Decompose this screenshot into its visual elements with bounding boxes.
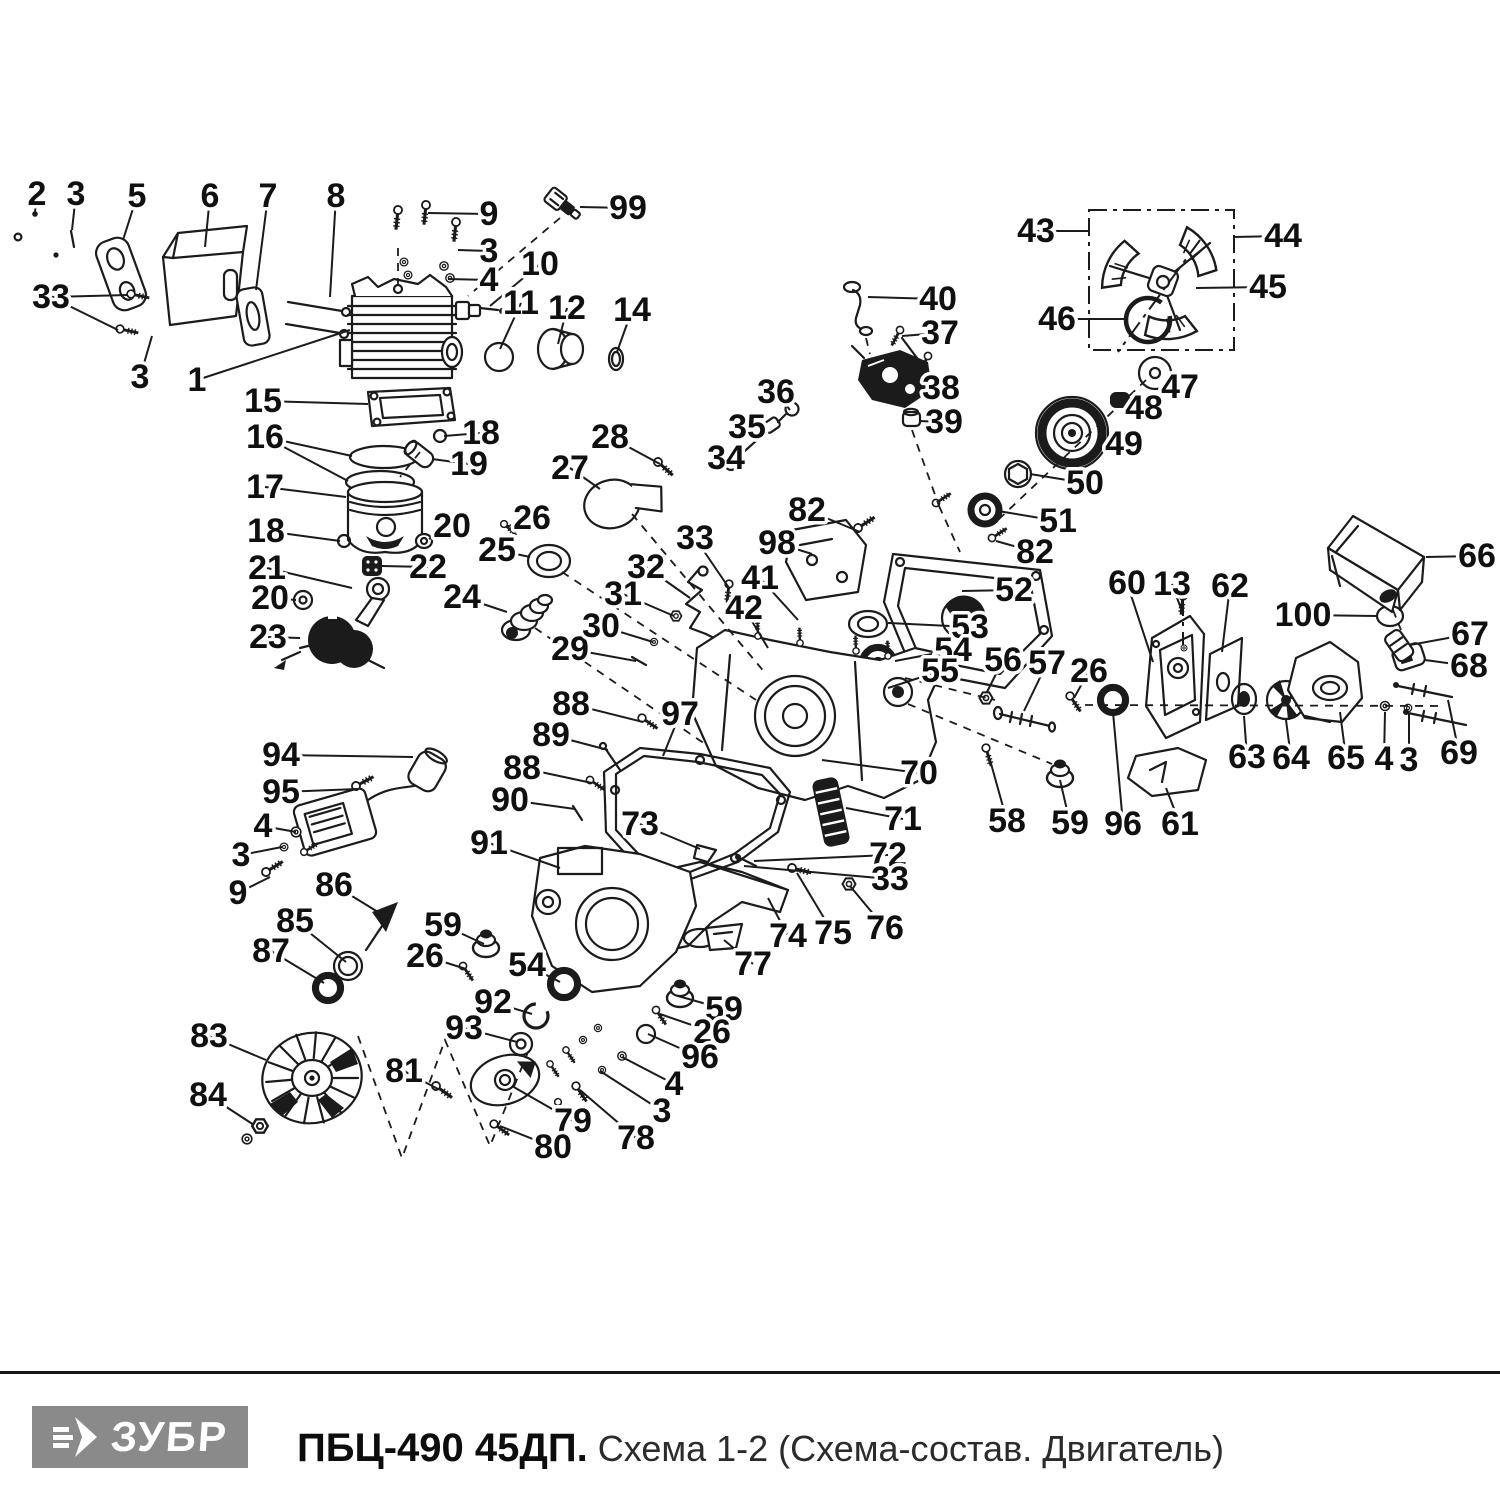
needle-bearing [362, 556, 382, 576]
part-label-22: 22 [380, 548, 447, 586]
part-label-39: 39 [919, 403, 963, 441]
svg-text:43: 43 [1017, 212, 1055, 250]
flywheel-nut-84 [242, 1119, 268, 1144]
washer-93 [510, 1033, 532, 1055]
svg-text:37: 37 [921, 314, 959, 352]
svg-text:3: 3 [653, 1092, 672, 1130]
part-label-45: 45 [1196, 268, 1287, 306]
svg-text:26: 26 [406, 937, 444, 975]
svg-text:7: 7 [259, 177, 278, 215]
svg-text:56: 56 [984, 641, 1022, 679]
part-label-9: 9 [229, 874, 270, 912]
svg-text:75: 75 [814, 914, 852, 952]
svg-text:13: 13 [1153, 565, 1191, 603]
svg-text:2: 2 [28, 175, 47, 213]
svg-text:33: 33 [32, 278, 70, 316]
svg-text:9: 9 [229, 874, 248, 912]
svg-text:81: 81 [385, 1052, 423, 1090]
exhaust-gasket [235, 286, 271, 347]
svg-text:76: 76 [866, 909, 904, 947]
part-label-36: 36 [757, 373, 795, 411]
svg-text:99: 99 [609, 189, 647, 227]
svg-text:68: 68 [1450, 647, 1488, 685]
cup-59 [667, 981, 693, 1008]
thrust-washer [294, 591, 312, 609]
svg-text:78: 78 [617, 1119, 655, 1157]
part-label-33: 33 [676, 519, 729, 588]
brand-name: ЗУБР [110, 1413, 230, 1461]
svg-text:94: 94 [262, 736, 300, 774]
svg-text:27: 27 [551, 449, 589, 487]
part-label-17: 17 [246, 468, 346, 506]
svg-text:12: 12 [548, 289, 586, 327]
part-label-20: 20 [429, 507, 471, 545]
footer-divider [0, 1371, 1500, 1374]
part-label-5: 5 [123, 177, 146, 240]
svg-text:46: 46 [1038, 300, 1076, 338]
part-label-57: 57 [1024, 644, 1066, 711]
svg-text:50: 50 [1066, 464, 1104, 502]
svg-text:63: 63 [1228, 738, 1266, 776]
pin-washer [416, 534, 432, 548]
svg-text:34: 34 [707, 439, 745, 477]
catcher-58 [981, 743, 995, 767]
part-label-71: 71 [846, 800, 922, 838]
part-label-24: 24 [443, 578, 507, 616]
clutch-assembly [1089, 210, 1234, 350]
nut-76 [843, 878, 856, 889]
part-label-3: 3 [131, 336, 152, 396]
svg-text:24: 24 [443, 578, 481, 616]
svg-text:40: 40 [919, 280, 957, 318]
small-fastener-cluster [15, 211, 74, 257]
svg-text:55: 55 [921, 652, 959, 690]
part-label-83: 83 [190, 1017, 266, 1060]
svg-text:18: 18 [247, 512, 285, 550]
svg-text:19: 19 [450, 445, 488, 483]
svg-text:33: 33 [676, 519, 714, 557]
flywheel [253, 1022, 372, 1134]
svg-text:26: 26 [513, 499, 551, 537]
svg-text:65: 65 [1327, 739, 1365, 777]
part-label-11: 11 [500, 284, 539, 349]
svg-text:60: 60 [1108, 564, 1146, 602]
connecting-rod [356, 578, 389, 626]
svg-text:28: 28 [591, 418, 629, 456]
svg-text:83: 83 [190, 1017, 228, 1055]
svg-text:59: 59 [1051, 804, 1089, 842]
svg-text:64: 64 [1272, 739, 1310, 777]
part-label-59: 59 [1051, 780, 1089, 842]
svg-text:57: 57 [1028, 644, 1066, 682]
spark-plug [543, 187, 583, 224]
part-label-18: 18 [247, 512, 340, 550]
decomp-valve [456, 302, 505, 319]
svg-text:49: 49 [1105, 425, 1143, 463]
svg-text:3: 3 [131, 358, 150, 396]
part-label-69: 69 [1440, 700, 1478, 772]
part-label-86: 86 [315, 866, 378, 912]
bearing-54 [548, 968, 580, 1000]
svg-text:17: 17 [246, 468, 284, 506]
part-label-15: 15 [244, 382, 368, 420]
part-label-28: 28 [591, 418, 660, 464]
svg-text:38: 38 [922, 369, 960, 407]
svg-text:58: 58 [988, 802, 1026, 840]
part-label-46: 46 [1038, 300, 1124, 338]
svg-text:86: 86 [315, 866, 353, 904]
studs-69 [1393, 682, 1466, 725]
svg-text:4: 4 [254, 807, 273, 845]
svg-text:70: 70 [900, 754, 938, 792]
exploded-diagram: 2356789993410111214333115161718181920222… [0, 0, 1500, 1500]
part-label-97: 97 [661, 695, 699, 756]
part-label-13: 13 [1153, 565, 1191, 614]
svg-text:66: 66 [1458, 537, 1496, 575]
o-ring-96 [637, 1025, 655, 1043]
svg-text:87: 87 [252, 932, 290, 970]
part-label-96: 96 [1104, 712, 1142, 843]
part-label-60: 60 [1108, 564, 1153, 662]
part-label-80: 80 [500, 1126, 572, 1166]
ignition-coil [292, 744, 451, 857]
schema-subtitle: Схема 1-2 (Схема-состав. Двигатель) [588, 1428, 1224, 1469]
svg-text:20: 20 [251, 579, 289, 617]
o-ring [485, 343, 513, 371]
svg-text:6: 6 [201, 177, 220, 215]
svg-text:39: 39 [925, 403, 963, 441]
part-label-37: 37 [902, 314, 959, 352]
part-label-62: 62 [1211, 567, 1249, 652]
part-label-64: 64 [1272, 720, 1310, 777]
seal-87 [313, 973, 343, 1003]
part-label-23: 23 [249, 618, 300, 656]
svg-text:11: 11 [503, 284, 539, 322]
part-label-4: 4 [254, 807, 296, 845]
part-label-9: 9 [428, 195, 498, 233]
svg-text:5: 5 [128, 177, 147, 215]
svg-text:54: 54 [508, 946, 546, 984]
brand-arrow-icon [51, 1413, 103, 1461]
svg-text:25: 25 [478, 531, 516, 569]
part-label-19: 19 [432, 445, 488, 483]
part-label-20: 20 [251, 579, 296, 617]
svg-text:48: 48 [1125, 389, 1163, 427]
part-label-3: 3 [67, 175, 86, 230]
svg-text:93: 93 [445, 1009, 483, 1047]
part-label-47: 47 [1161, 368, 1199, 406]
svg-text:44: 44 [1264, 217, 1302, 255]
dowel-89 [600, 743, 620, 770]
cylinder [340, 275, 462, 378]
bolt-26 [1065, 691, 1084, 714]
svg-text:73: 73 [621, 805, 659, 843]
part-label-48: 48 [1124, 389, 1163, 427]
svg-text:33: 33 [871, 860, 909, 898]
part-label-3: 3 [1400, 714, 1419, 779]
svg-text:52: 52 [995, 571, 1033, 609]
svg-text:3: 3 [67, 175, 86, 213]
trigger-86 [366, 902, 398, 950]
svg-text:4: 4 [480, 261, 499, 299]
part-label-8: 8 [327, 177, 346, 297]
part-label-7: 7 [256, 177, 277, 290]
part-label-81: 81 [385, 1052, 438, 1090]
seal-53 [849, 611, 887, 637]
washer [1181, 645, 1187, 651]
svg-text:97: 97 [661, 695, 699, 733]
nut-56 [980, 692, 993, 703]
svg-text:15: 15 [244, 382, 282, 420]
svg-text:32: 32 [627, 548, 665, 586]
pump-gasket-62 [1206, 638, 1242, 720]
part-label-38: 38 [920, 369, 960, 407]
part-label-58: 58 [988, 760, 1026, 840]
svg-text:71: 71 [884, 800, 922, 838]
starter-pawl-79 [464, 1046, 545, 1113]
oil-pump-worm-24 [502, 595, 552, 640]
pump-plate-60 [1146, 616, 1204, 738]
part-label-99: 99 [580, 189, 647, 227]
part-label-73: 73 [621, 805, 700, 849]
svg-text:36: 36 [757, 373, 795, 411]
part-label-94: 94 [262, 736, 413, 774]
svg-text:98: 98 [758, 524, 796, 562]
clamp-ring [609, 348, 623, 370]
part-label-61: 61 [1161, 788, 1199, 843]
screw-28 [652, 456, 675, 478]
piston [348, 482, 422, 553]
part-label-2: 2 [28, 175, 47, 213]
part-label-4: 4 [448, 261, 499, 299]
svg-text:8: 8 [327, 177, 346, 215]
svg-text:14: 14 [613, 291, 651, 329]
svg-text:1: 1 [188, 361, 207, 399]
part-label-77: 77 [724, 940, 772, 983]
svg-text:96: 96 [1104, 805, 1142, 843]
air-box-66 [1328, 516, 1424, 612]
part-label-34: 34 [707, 439, 745, 477]
muffler-gasket [93, 234, 150, 313]
screw-81 [430, 1080, 454, 1101]
part-label-68: 68 [1425, 647, 1488, 685]
model-name: ПБЦ-490 45ДП. [297, 1426, 588, 1470]
part-label-50: 50 [1030, 464, 1104, 502]
svg-text:91: 91 [470, 824, 508, 862]
part-label-84: 84 [189, 1076, 254, 1125]
svg-text:10: 10 [521, 245, 559, 283]
svg-text:77: 77 [734, 945, 772, 983]
svg-text:22: 22 [409, 548, 447, 586]
svg-text:3: 3 [232, 836, 251, 874]
svg-text:82: 82 [1016, 533, 1054, 571]
impulse-elbow [844, 282, 872, 335]
part-label-44: 44 [1233, 217, 1302, 255]
circlip-92 [524, 1004, 548, 1028]
part-label-40: 40 [868, 280, 957, 318]
svg-text:90: 90 [491, 781, 529, 819]
svg-text:26: 26 [1070, 652, 1108, 690]
schematic-page: 2356789993410111214333115161718181920222… [0, 0, 1500, 1500]
grommet-39 [903, 409, 920, 426]
bolt-26 [458, 961, 476, 983]
svg-text:84: 84 [189, 1076, 227, 1114]
screw-9 [260, 858, 285, 878]
svg-text:23: 23 [249, 618, 287, 656]
seal-63 [1232, 684, 1256, 714]
cup-59 [473, 931, 499, 958]
screw-82 [987, 525, 1009, 543]
svg-text:3: 3 [1400, 741, 1419, 779]
schema-caption: ПБЦ-490 45ДП. Схема 1-2 (Схема-состав. Д… [297, 1426, 1224, 1471]
svg-text:9: 9 [480, 195, 499, 233]
svg-text:74: 74 [769, 917, 807, 955]
guide-plate-98 [786, 520, 866, 600]
part-label-14: 14 [613, 291, 651, 352]
svg-text:69: 69 [1440, 734, 1478, 772]
svg-text:96: 96 [681, 1038, 719, 1076]
svg-text:100: 100 [1275, 596, 1332, 634]
svg-text:42: 42 [725, 589, 763, 627]
svg-text:20: 20 [433, 507, 471, 545]
part-label-63: 63 [1228, 716, 1266, 776]
svg-text:16: 16 [246, 418, 284, 456]
part-label-49: 49 [1100, 425, 1143, 463]
part-label-66: 66 [1426, 537, 1496, 575]
svg-text:61: 61 [1161, 805, 1199, 843]
svg-text:45: 45 [1249, 268, 1287, 306]
base-gasket [368, 388, 455, 426]
worm-housing-65 [1288, 642, 1362, 722]
svg-text:4: 4 [1375, 740, 1394, 778]
brand-logo: ЗУБР [32, 1406, 248, 1468]
part-label-100: 100 [1275, 596, 1376, 634]
svg-text:47: 47 [1161, 368, 1199, 406]
svg-text:95: 95 [262, 773, 300, 811]
part-label-43: 43 [1017, 212, 1089, 250]
svg-text:80: 80 [534, 1128, 572, 1166]
part-label-4: 4 [1375, 712, 1394, 778]
svg-text:62: 62 [1211, 567, 1249, 605]
cover-disc-27 [579, 467, 669, 534]
